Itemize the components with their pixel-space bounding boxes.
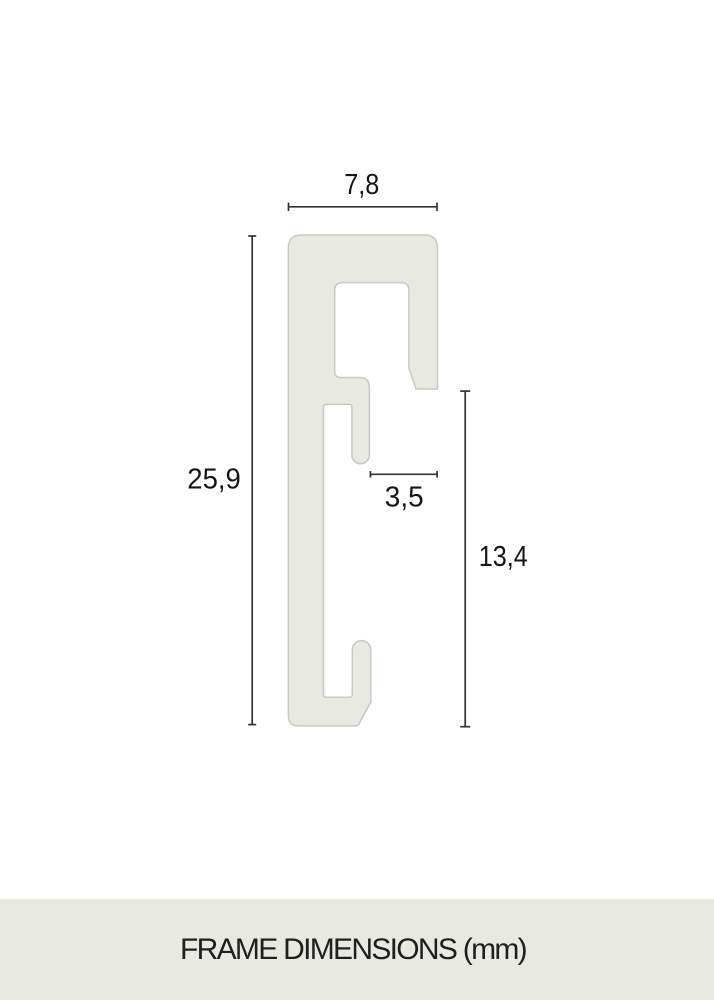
svg-text:13,4: 13,4 xyxy=(479,541,528,573)
svg-text:3,5: 3,5 xyxy=(385,481,424,513)
svg-text:25,9: 25,9 xyxy=(187,463,241,495)
svg-text:7,8: 7,8 xyxy=(344,169,379,201)
